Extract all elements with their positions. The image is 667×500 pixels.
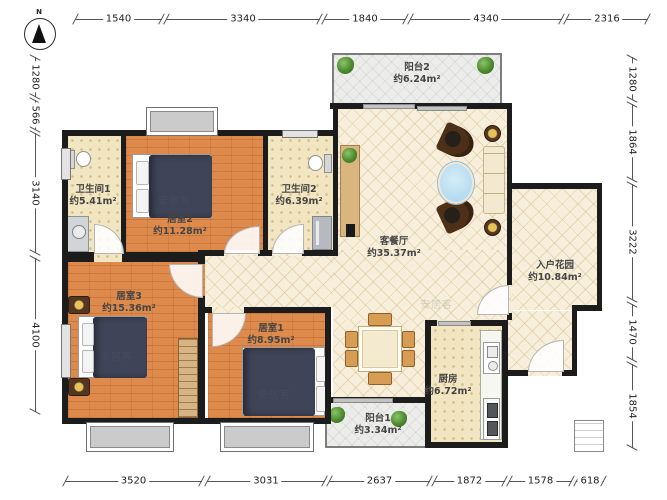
bay-window bbox=[86, 422, 174, 452]
dining-chair bbox=[368, 313, 392, 326]
floor-living-upper bbox=[338, 109, 507, 250]
dim-label: 1470 bbox=[627, 316, 638, 347]
dim-label: 2316 bbox=[591, 14, 622, 25]
room-label-bathroom1: 卫生间1 约5.41m² bbox=[63, 184, 123, 209]
dim-right-2: 1864 bbox=[625, 104, 639, 180]
room-area: 约6.72m² bbox=[408, 386, 488, 398]
dim-label: 1280 bbox=[30, 61, 41, 92]
room-name: 居室2 bbox=[140, 214, 220, 226]
dim-label: 1872 bbox=[454, 476, 485, 487]
dining-chair bbox=[345, 331, 358, 348]
dim-left-1: 1280 bbox=[28, 57, 42, 97]
dim-label: 566 bbox=[30, 102, 41, 127]
coffee-table bbox=[438, 162, 474, 204]
wall-segment bbox=[258, 250, 272, 256]
room-area: 约6.39m² bbox=[269, 196, 329, 208]
room-area: 约15.36m² bbox=[89, 303, 169, 315]
floor-entry-garden bbox=[512, 189, 597, 310]
nightstand bbox=[68, 296, 90, 314]
pillow bbox=[82, 323, 94, 346]
pillow bbox=[82, 350, 94, 373]
sliding-door bbox=[417, 106, 467, 111]
wall-segment bbox=[325, 307, 331, 418]
dining-table bbox=[358, 326, 402, 372]
window-icon bbox=[61, 148, 71, 180]
window-icon bbox=[282, 130, 318, 138]
dim-label: 4340 bbox=[470, 14, 501, 25]
wall-segment bbox=[507, 103, 512, 285]
dim-label: 618 bbox=[577, 476, 602, 487]
room-name: 阳台2 bbox=[377, 62, 457, 74]
room-name: 卫生间1 bbox=[63, 184, 123, 196]
room-label-garden: 入户花园 约10.84m² bbox=[515, 260, 595, 285]
stove-icon bbox=[483, 398, 500, 440]
dining-chair bbox=[345, 350, 358, 367]
dim-bottom-6: 618 bbox=[576, 474, 604, 488]
dim-label: 1864 bbox=[627, 126, 638, 157]
dim-right-4: 1470 bbox=[625, 304, 639, 360]
floor-hallway bbox=[205, 256, 333, 307]
dim-label: 4100 bbox=[30, 319, 41, 350]
wall-segment bbox=[333, 103, 338, 250]
dim-bottom-1: 3520 bbox=[65, 474, 202, 488]
shower-icon bbox=[312, 216, 332, 250]
sofa bbox=[483, 146, 505, 214]
compass-icon: N bbox=[20, 8, 58, 56]
wall-segment bbox=[122, 252, 198, 262]
wall-segment bbox=[502, 320, 508, 448]
washbasin-icon bbox=[67, 216, 89, 252]
dim-label: 3031 bbox=[250, 476, 281, 487]
dim-bottom-5: 1578 bbox=[509, 474, 572, 488]
room-area: 约5.41m² bbox=[63, 196, 123, 208]
nightstand bbox=[68, 378, 90, 396]
dim-label: 3222 bbox=[627, 226, 638, 257]
room-label-kitchen: 厨房 约6.72m² bbox=[408, 374, 488, 399]
dim-label: 3140 bbox=[30, 177, 41, 208]
dim-label: 1840 bbox=[349, 14, 380, 25]
toilet-icon bbox=[306, 152, 332, 174]
dim-top-4: 4340 bbox=[410, 12, 562, 26]
wall-segment bbox=[572, 305, 577, 376]
sliding-door bbox=[333, 398, 393, 403]
room-area: 约11.28m² bbox=[140, 226, 220, 238]
dim-bottom-2: 3031 bbox=[207, 474, 325, 488]
dining-chair bbox=[402, 331, 415, 348]
watermark: 安居客 bbox=[100, 348, 133, 363]
watermark: 安居客 bbox=[258, 386, 291, 401]
room-name: 入户花园 bbox=[515, 260, 595, 272]
entry-step bbox=[574, 420, 604, 452]
dim-label: 3340 bbox=[227, 14, 258, 25]
side-table bbox=[484, 219, 501, 236]
dim-top-5: 2316 bbox=[566, 12, 648, 26]
side-table bbox=[484, 125, 501, 142]
dim-label: 1578 bbox=[525, 476, 556, 487]
dim-label: 3520 bbox=[118, 476, 149, 487]
wall-segment bbox=[198, 296, 205, 418]
dining-chair bbox=[402, 350, 415, 367]
room-area: 约8.95m² bbox=[231, 335, 311, 347]
wall-segment bbox=[302, 250, 338, 256]
watermark: 安居客 bbox=[420, 296, 453, 311]
dim-top-2: 3340 bbox=[166, 12, 320, 26]
bed-bedroom3 bbox=[78, 316, 147, 378]
room-label-bedroom1: 居室1 约8.95m² bbox=[231, 323, 311, 348]
room-area: 约3.34m² bbox=[338, 425, 418, 437]
room-area: 约35.37m² bbox=[354, 248, 434, 260]
dim-label: 1280 bbox=[627, 63, 638, 94]
wall-segment bbox=[198, 256, 205, 264]
room-name: 厨房 bbox=[408, 374, 488, 386]
dim-left-4: 4100 bbox=[28, 258, 42, 412]
watermark: 安居客 bbox=[158, 192, 191, 207]
duvet bbox=[149, 155, 212, 218]
dim-label: 1540 bbox=[103, 14, 134, 25]
wall-segment bbox=[425, 442, 508, 448]
dim-top-1: 1540 bbox=[75, 12, 162, 26]
dim-label: 2637 bbox=[364, 476, 395, 487]
wall-segment bbox=[507, 183, 602, 189]
dim-bottom-4: 1872 bbox=[434, 474, 505, 488]
room-name: 客餐厅 bbox=[354, 236, 434, 248]
bay-window bbox=[220, 422, 314, 452]
room-name: 居室3 bbox=[89, 291, 169, 303]
room-label-bedroom3: 居室3 约15.36m² bbox=[89, 291, 169, 316]
room-label-living: 客餐厅 约35.37m² bbox=[354, 236, 434, 261]
sink-icon bbox=[483, 342, 500, 374]
duvet bbox=[243, 348, 315, 416]
dining-chair bbox=[368, 372, 392, 385]
wall-segment bbox=[244, 307, 331, 313]
room-name: 阳台1 bbox=[338, 413, 418, 425]
pillow bbox=[136, 189, 149, 213]
room-name: 卫生间2 bbox=[269, 184, 329, 196]
room-area: 约6.24m² bbox=[377, 74, 457, 86]
bed-bedroom2 bbox=[132, 154, 212, 218]
window-icon bbox=[61, 324, 71, 378]
bed-bedroom1 bbox=[242, 347, 325, 416]
wall-segment bbox=[597, 183, 602, 311]
wardrobe bbox=[178, 338, 198, 418]
room-area: 约10.84m² bbox=[515, 272, 595, 284]
dim-right-3: 3222 bbox=[625, 184, 639, 300]
dim-right-1: 1280 bbox=[625, 57, 639, 100]
dim-label: 1854 bbox=[627, 390, 638, 421]
pillow bbox=[136, 161, 149, 185]
room-label-balcony1: 阳台1 约3.34m² bbox=[338, 413, 418, 438]
compass-north-label: N bbox=[20, 8, 58, 16]
compass-needle-icon bbox=[32, 24, 46, 43]
dim-left-2: 566 bbox=[28, 100, 42, 130]
room-label-bathroom2: 卫生间2 约6.39m² bbox=[269, 184, 329, 209]
room-label-balcony2: 阳台2 约6.24m² bbox=[377, 62, 457, 87]
dim-right-5: 1854 bbox=[625, 364, 639, 448]
room-name: 居室1 bbox=[231, 323, 311, 335]
floorplan-canvas: N 1540 3340 1840 4340 2316 1280 566 3140… bbox=[0, 0, 667, 500]
wall-segment bbox=[263, 136, 268, 250]
dim-bottom-3: 2637 bbox=[329, 474, 430, 488]
room-label-bedroom2: 居室2 约11.28m² bbox=[140, 214, 220, 239]
sliding-door bbox=[363, 104, 415, 109]
dim-top-3: 1840 bbox=[324, 12, 406, 26]
bay-window bbox=[146, 107, 218, 136]
sliding-door bbox=[438, 321, 471, 326]
dim-left-3: 3140 bbox=[28, 133, 42, 253]
